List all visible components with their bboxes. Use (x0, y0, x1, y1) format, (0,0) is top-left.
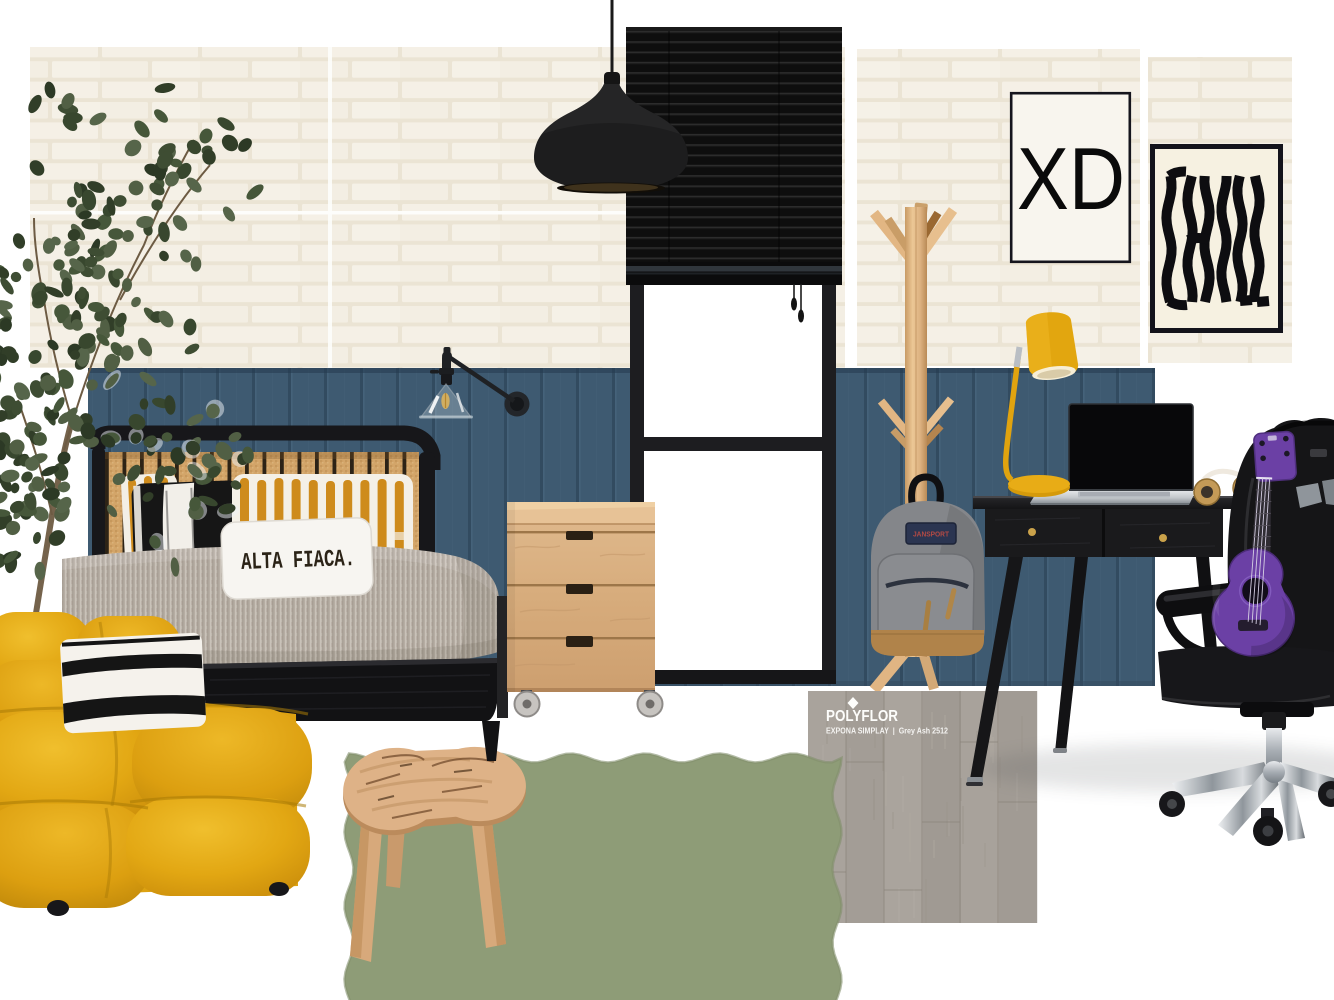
svg-text:XD: XD (1017, 129, 1125, 228)
svg-text:POLYFLOR: POLYFLOR (826, 708, 898, 725)
svg-text:ALTA FIACA.: ALTA FIACA. (241, 546, 356, 577)
svg-text:JANSPORT: JANSPORT (913, 532, 950, 539)
svg-text:EXPONA SIMPLAY | Grey Ash 25: EXPONA SIMPLAY | Grey Ash 2512 (826, 727, 948, 736)
